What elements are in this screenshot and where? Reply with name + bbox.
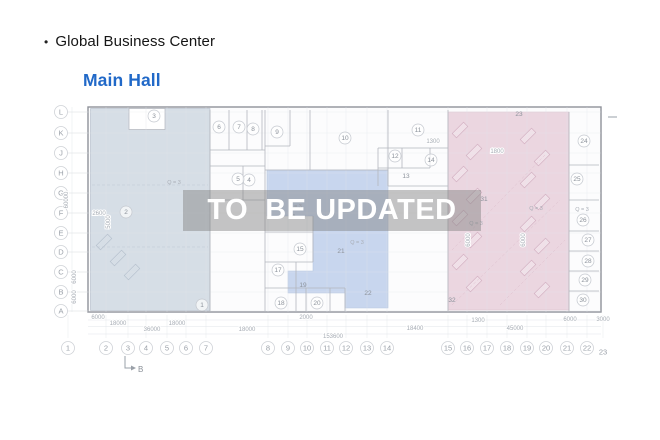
watermark-text: TO BE UPDATED bbox=[207, 194, 456, 227]
room-number: 23 bbox=[515, 111, 523, 118]
room-number: 24 bbox=[580, 138, 588, 145]
room-number: 28 bbox=[584, 258, 592, 265]
room-number: 9 bbox=[275, 129, 279, 136]
dimension-label: 6000 bbox=[91, 315, 105, 321]
dimension-label: 45000 bbox=[507, 326, 524, 332]
room-number: 2 bbox=[124, 209, 128, 216]
grid-col-label: 12 bbox=[342, 344, 350, 353]
room-number: 19 bbox=[299, 282, 307, 289]
dimension-label: 1800 bbox=[490, 149, 504, 155]
room-number: 4 bbox=[247, 177, 251, 184]
section-marker-label: B bbox=[138, 365, 143, 374]
section-arrowhead bbox=[131, 366, 136, 371]
dimension-label: 18000 bbox=[169, 321, 186, 327]
dimension-label: 18400 bbox=[407, 326, 424, 332]
room-number: 7 bbox=[237, 124, 241, 131]
room-number: 21 bbox=[337, 248, 345, 255]
grid-col-label: 8 bbox=[266, 344, 270, 353]
grid-col-label: 17 bbox=[483, 344, 491, 353]
room-number: 20 bbox=[313, 300, 321, 307]
room-number: 8 bbox=[251, 126, 255, 133]
grid-col-label: 11 bbox=[323, 344, 331, 353]
q-annotation: Q = 3 bbox=[167, 180, 181, 186]
grid-col-label: 18 bbox=[503, 344, 511, 353]
dimension-label: 1300 bbox=[471, 318, 485, 324]
grid-row-label: E bbox=[58, 229, 63, 238]
room-number: 22 bbox=[364, 290, 372, 297]
room-number: 5 bbox=[236, 176, 240, 183]
dimension-label: 6000 bbox=[72, 290, 78, 304]
room-number: 11 bbox=[415, 127, 422, 134]
room-number: 1 bbox=[200, 302, 204, 309]
dimension-label: 6000 bbox=[521, 233, 527, 247]
grid-col-label: 9 bbox=[286, 344, 290, 353]
room-number: 12 bbox=[391, 153, 399, 160]
room-number: 14 bbox=[427, 157, 435, 164]
dimension-label: 6000 bbox=[72, 270, 78, 284]
grid-row-label: K bbox=[58, 129, 63, 138]
q-annotation: Q = 3 bbox=[575, 207, 589, 213]
dimension-label: 153600 bbox=[323, 334, 344, 340]
grid-col-label: 1 bbox=[66, 344, 70, 353]
grid-col-label: 2 bbox=[104, 344, 108, 353]
grid-col-label: 13 bbox=[363, 344, 371, 353]
room-number: 18 bbox=[277, 300, 285, 307]
grid-row-label: J bbox=[59, 149, 63, 158]
grid-row-label: F bbox=[59, 209, 64, 218]
room-number: 32 bbox=[448, 297, 456, 304]
grid-col-label: 4 bbox=[144, 344, 148, 353]
grid-row-label: B bbox=[58, 288, 63, 297]
grid-col-label: 3 bbox=[126, 344, 130, 353]
grid-row-label: C bbox=[58, 268, 64, 277]
room-number: 26 bbox=[579, 217, 587, 224]
room-number: 3 bbox=[152, 113, 156, 120]
grid-col-label: 10 bbox=[303, 344, 311, 353]
dimension-label: 18000 bbox=[239, 327, 256, 333]
room-number: 31 bbox=[480, 196, 488, 203]
grid-row-label: A bbox=[58, 307, 63, 316]
grid-col-label: 16 bbox=[463, 344, 471, 353]
room-number: 30 bbox=[579, 297, 587, 304]
dimension-label: 36000 bbox=[144, 327, 161, 333]
dimension-label: 5000 bbox=[106, 215, 112, 229]
watermark-band: TO BE UPDATED bbox=[183, 190, 481, 231]
q-annotation: Q = 3 bbox=[350, 240, 364, 246]
room-number: 25 bbox=[573, 176, 581, 183]
grid-col-label: 6 bbox=[184, 344, 188, 353]
dimension-label: 1300 bbox=[426, 139, 440, 145]
room-number: 6 bbox=[217, 124, 221, 131]
room-number: 15 bbox=[296, 246, 304, 253]
room-number: 10 bbox=[341, 135, 349, 142]
dimension-label: 18000 bbox=[110, 321, 127, 327]
left-zone-notch bbox=[129, 109, 165, 130]
room-number: 29 bbox=[581, 277, 589, 284]
grid-col-label: 22 bbox=[583, 344, 591, 353]
dimension-label: 3000 bbox=[596, 317, 610, 323]
section-arrow bbox=[125, 356, 131, 368]
grid-col-label: 7 bbox=[204, 344, 208, 353]
room-number: 27 bbox=[584, 237, 592, 244]
dimension-label: 2600 bbox=[92, 211, 106, 217]
grid-col-label: 19 bbox=[523, 344, 531, 353]
room-number: 13 bbox=[402, 173, 410, 180]
grid-col-label: 15 bbox=[444, 344, 452, 353]
grid-col-label: 20 bbox=[542, 344, 550, 353]
dimension-label: 6000 bbox=[466, 233, 472, 247]
grid-row-label: L bbox=[59, 108, 63, 117]
room-number: 17 bbox=[274, 267, 282, 274]
grid-col-label: 23 bbox=[599, 348, 607, 357]
dimension-label: 6000 bbox=[563, 317, 577, 323]
grid-col-label: 5 bbox=[165, 344, 169, 353]
dimension-label: 60000 bbox=[64, 191, 70, 208]
dimension-label: 2000 bbox=[299, 315, 313, 321]
grid-row-label: H bbox=[58, 169, 63, 178]
grid-col-label: 14 bbox=[383, 344, 391, 353]
q-annotation: Q = 3 bbox=[529, 206, 543, 212]
grid-col-label: 21 bbox=[563, 344, 571, 353]
grid-row-label: D bbox=[58, 248, 64, 257]
